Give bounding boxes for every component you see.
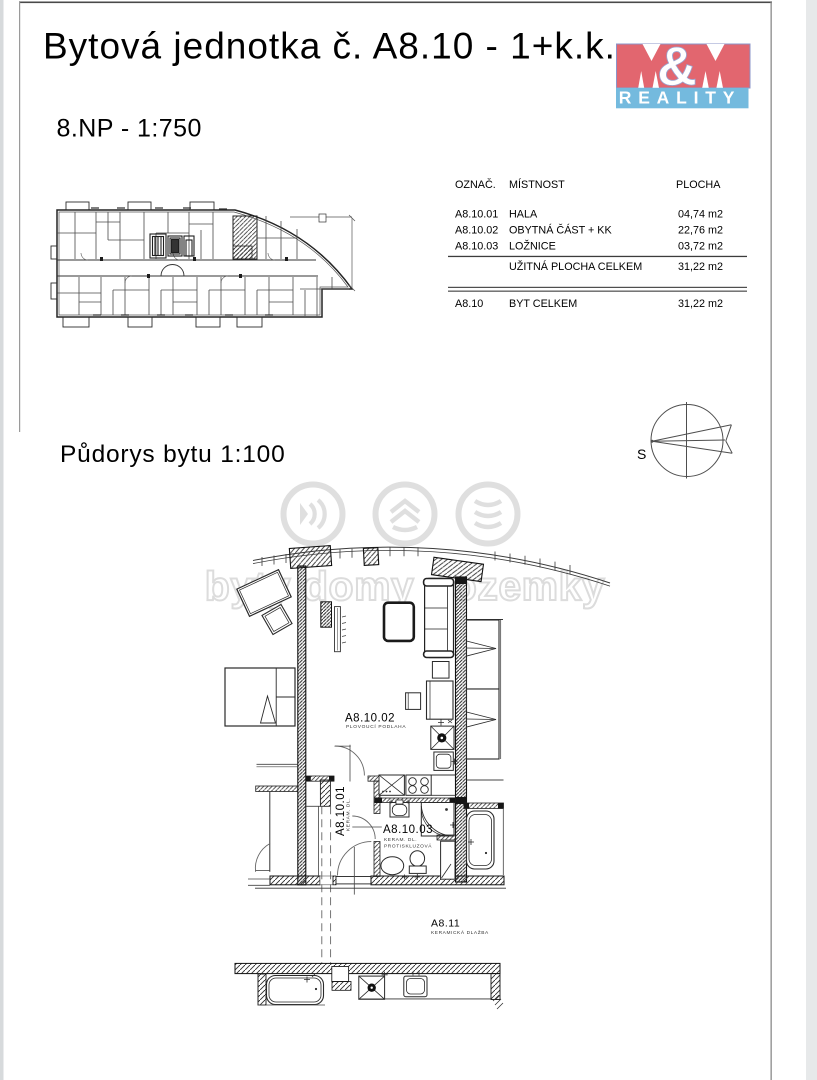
svg-text:03,72 m2: 03,72 m2: [678, 241, 723, 253]
svg-text:A8.10.03: A8.10.03: [455, 241, 498, 253]
svg-text:S: S: [637, 446, 646, 462]
svg-text:A8.10.01: A8.10.01: [455, 209, 498, 221]
svg-text:22,76 m2: 22,76 m2: [678, 225, 723, 237]
svg-text:A8.10: A8.10: [455, 298, 483, 310]
svg-text:PROTISKLUZOVÁ: PROTISKLUZOVÁ: [384, 843, 432, 850]
svg-text:REALITY: REALITY: [619, 88, 741, 108]
svg-text:LOŽNICE: LOŽNICE: [509, 240, 556, 253]
svg-text:A8.10.03: A8.10.03: [383, 824, 433, 836]
svg-text:A8.10.02: A8.10.02: [455, 225, 498, 237]
svg-text:Půdorys bytu 1:100: Půdorys bytu 1:100: [60, 441, 286, 468]
svg-text:OZNAČ.: OZNAČ.: [455, 178, 496, 191]
svg-text:A8.10.01: A8.10.01: [335, 786, 347, 836]
svg-text:OBYTNÁ ČÁST + KK: OBYTNÁ ČÁST + KK: [509, 224, 613, 237]
svg-text:BYT CELKEM: BYT CELKEM: [509, 298, 577, 310]
svg-text:MÍSTNOST: MÍSTNOST: [509, 178, 565, 191]
svg-text:8.NP - 1:750: 8.NP - 1:750: [57, 115, 202, 143]
svg-text:A8.11: A8.11: [431, 918, 460, 930]
svg-text:PLOVOUCÍ PODLAHA: PLOVOUCÍ PODLAHA: [346, 723, 406, 730]
svg-text:04,74 m2: 04,74 m2: [678, 209, 723, 221]
svg-text:A8.10.02: A8.10.02: [345, 713, 395, 725]
svg-text:31,22 m2: 31,22 m2: [678, 261, 723, 273]
svg-text:PLOCHA: PLOCHA: [676, 179, 721, 191]
svg-text:Bytová jednotka č. A8.10 - 1+k: Bytová jednotka č. A8.10 - 1+k.k.: [43, 26, 616, 67]
svg-text:KERAM. DL.: KERAM. DL.: [384, 837, 417, 843]
svg-text:UŽITNÁ PLOCHA CELKEM: UŽITNÁ PLOCHA CELKEM: [509, 260, 642, 273]
svg-text:KERAM. DL.: KERAM. DL.: [346, 798, 352, 831]
svg-text:31,22 m2: 31,22 m2: [678, 298, 723, 310]
svg-text:HALA: HALA: [509, 209, 538, 221]
